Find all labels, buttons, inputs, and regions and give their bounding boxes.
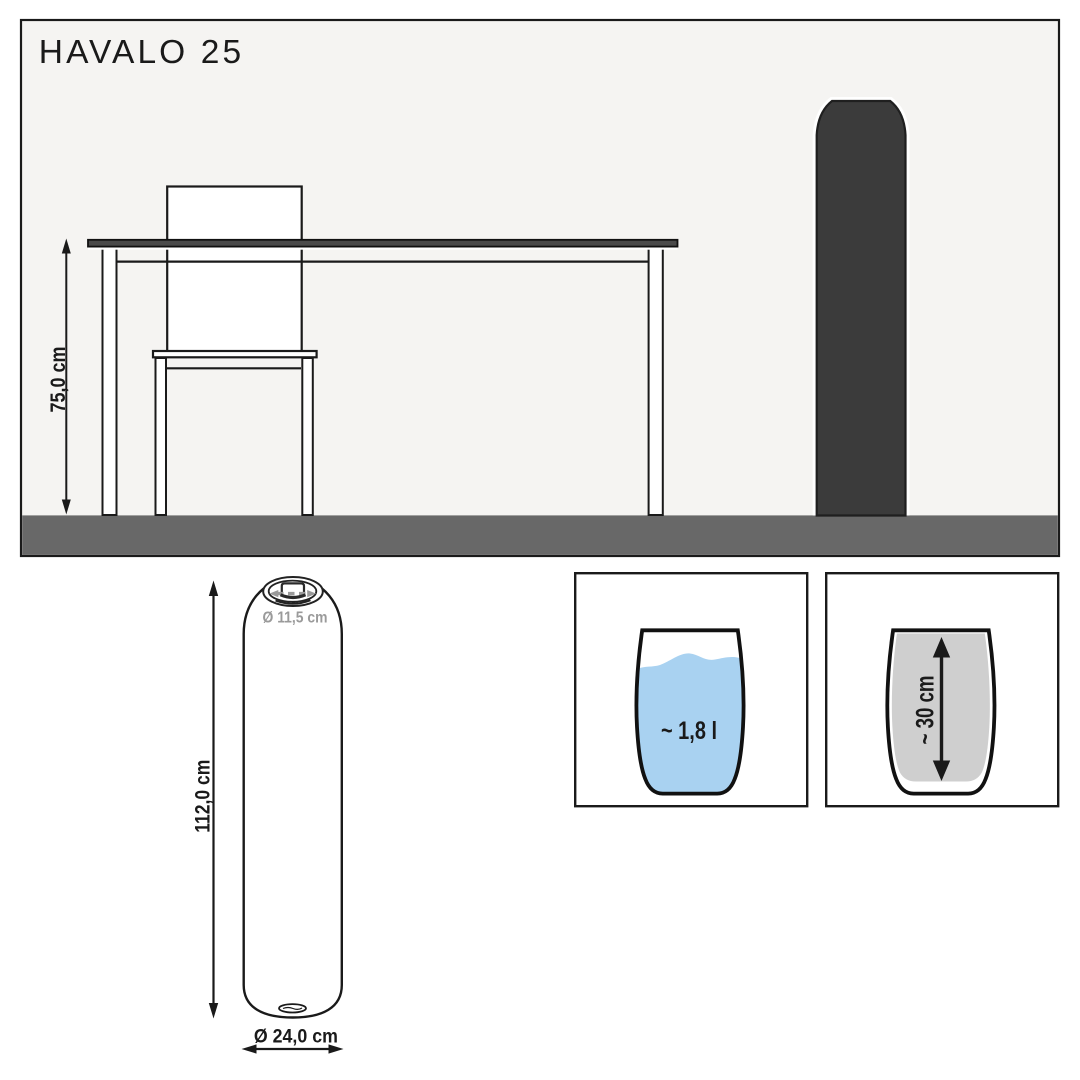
svg-text:75,0 cm: 75,0 cm [47,347,70,413]
svg-text:~ 1,8 l: ~ 1,8 l [661,717,717,745]
svg-text:~ 30 cm: ~ 30 cm [912,676,940,745]
svg-text:112,0 cm: 112,0 cm [190,760,214,833]
svg-text:Ø 24,0 cm: Ø 24,0 cm [254,1026,338,1048]
svg-text:HAVALO 25: HAVALO 25 [39,34,244,71]
svg-text:Ø 11,5 cm: Ø 11,5 cm [263,610,328,627]
